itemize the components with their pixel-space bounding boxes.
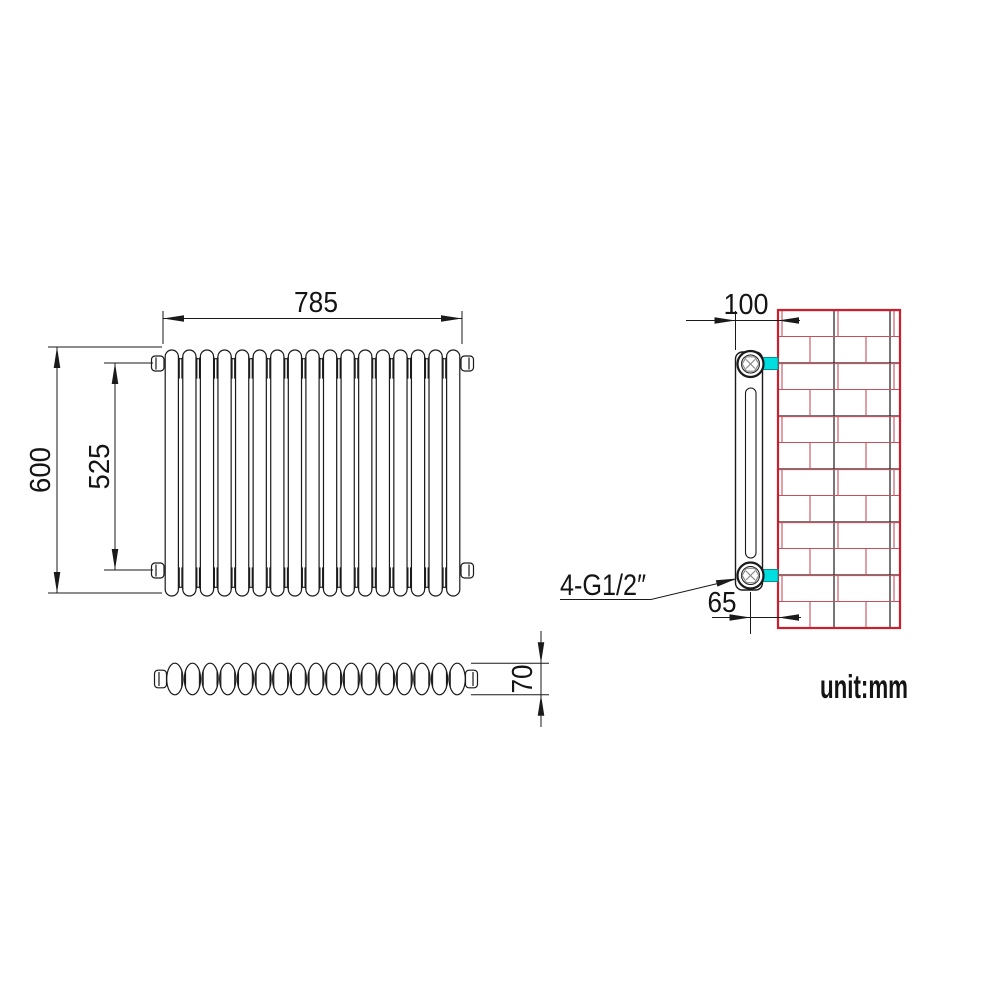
front-column-valley: [337, 357, 341, 359]
front-column: [394, 350, 407, 596]
plan-section: [273, 663, 289, 695]
unit-note: unit:mm: [820, 668, 908, 705]
front-view: [152, 350, 474, 596]
front-column: [218, 350, 231, 596]
front-column-valley: [407, 587, 411, 589]
radiator-technical-drawing: 785 600 525 70 100 65 4-G1/2″ unit:mm: [0, 0, 1000, 1000]
front-column: [341, 350, 354, 596]
plan-section: [202, 663, 218, 695]
front-column-valley: [442, 587, 446, 589]
plan-section: [431, 663, 447, 695]
front-column-valley: [266, 587, 270, 589]
radiator-front-columns: [165, 350, 460, 596]
dim-arrow: [538, 695, 545, 716]
front-column-valley: [442, 357, 446, 359]
brick-wall: [778, 310, 900, 628]
plan-section: [237, 663, 253, 695]
plan-section: [308, 663, 324, 695]
front-column: [306, 350, 319, 596]
dim-arrow: [538, 642, 545, 663]
side-tapping-top: [738, 351, 764, 377]
front-column-valley: [407, 357, 411, 359]
radiator-plan-sections: [167, 663, 466, 695]
dim-70-text: 70: [507, 665, 539, 694]
front-column-valley: [284, 587, 288, 589]
front-column-valley: [196, 357, 200, 359]
side-view: [736, 310, 901, 628]
front-column-valley: [214, 357, 218, 359]
front-column: [376, 350, 389, 596]
front-column-valley: [337, 587, 341, 589]
plan-stub-left: [155, 670, 167, 688]
dim-arrow: [441, 315, 462, 322]
dim-600-text: 600: [25, 447, 57, 493]
plan-section: [184, 663, 200, 695]
plan-section: [396, 663, 412, 695]
front-column: [253, 350, 266, 596]
plan-section: [343, 663, 359, 695]
front-column-valley: [302, 357, 306, 359]
drawing-canvas: 785 600 525 70 100 65 4-G1/2″ unit:mm: [0, 0, 1000, 1000]
plan-section: [326, 663, 342, 695]
front-column: [165, 350, 178, 596]
front-column-valley: [249, 357, 253, 359]
side-tapping-bottom: [738, 563, 764, 589]
front-stub-top-right: [461, 356, 474, 371]
dim-arrow: [112, 363, 119, 384]
front-column-valley: [196, 587, 200, 589]
plan-section: [220, 663, 236, 695]
plan-section: [290, 663, 306, 695]
front-column-valley: [354, 357, 358, 359]
front-column-valley: [425, 587, 429, 589]
front-column-valley: [266, 357, 270, 359]
front-column-valley: [284, 357, 288, 359]
front-column-valley: [354, 587, 358, 589]
dim-525-text: 525: [84, 444, 116, 490]
front-stub-top-left: [152, 356, 165, 371]
dim-arrow: [112, 549, 119, 570]
plan-view: [155, 663, 478, 695]
front-column: [359, 350, 372, 596]
wall-brackets: [763, 358, 779, 582]
front-column-valley: [372, 587, 376, 589]
front-column: [447, 350, 460, 596]
plan-section: [378, 663, 394, 695]
front-column-valley: [249, 587, 253, 589]
dim-65-text: 65: [708, 587, 737, 619]
connection-size-label: 4-G1/2″: [560, 569, 646, 602]
plan-stub-right: [466, 670, 478, 688]
plan-section: [255, 663, 271, 695]
front-column: [271, 350, 284, 596]
front-column-valley: [389, 357, 393, 359]
front-column-valley: [319, 357, 323, 359]
front-column-valley: [372, 357, 376, 359]
front-stub-bottom-left: [152, 563, 165, 578]
front-column-valley: [178, 357, 182, 359]
dim-arrow: [54, 347, 61, 368]
front-stub-bottom-right: [461, 563, 474, 578]
front-column-valley: [425, 357, 429, 359]
front-column-valley: [231, 587, 235, 589]
front-column: [288, 350, 301, 596]
bracket-top: [763, 358, 779, 370]
bracket-bottom: [763, 570, 779, 582]
front-column: [200, 350, 213, 596]
front-column-valley: [214, 587, 218, 589]
front-column-valley: [389, 587, 393, 589]
front-column-valley: [231, 357, 235, 359]
dim-785-text: 785: [294, 287, 338, 319]
front-column: [236, 350, 249, 596]
dim-arrow: [716, 579, 737, 587]
front-column-valley: [319, 587, 323, 589]
dim-arrow: [54, 572, 61, 593]
plan-section: [361, 663, 377, 695]
front-column: [323, 350, 336, 596]
front-column-valley: [302, 587, 306, 589]
plan-section: [449, 663, 465, 695]
plan-section: [167, 663, 183, 695]
front-column: [411, 350, 424, 596]
plan-section: [414, 663, 430, 695]
dim-100-text: 100: [724, 289, 769, 321]
front-column-valley: [178, 587, 182, 589]
front-column: [429, 350, 442, 596]
front-column: [183, 350, 196, 596]
dim-arrow: [163, 315, 184, 322]
